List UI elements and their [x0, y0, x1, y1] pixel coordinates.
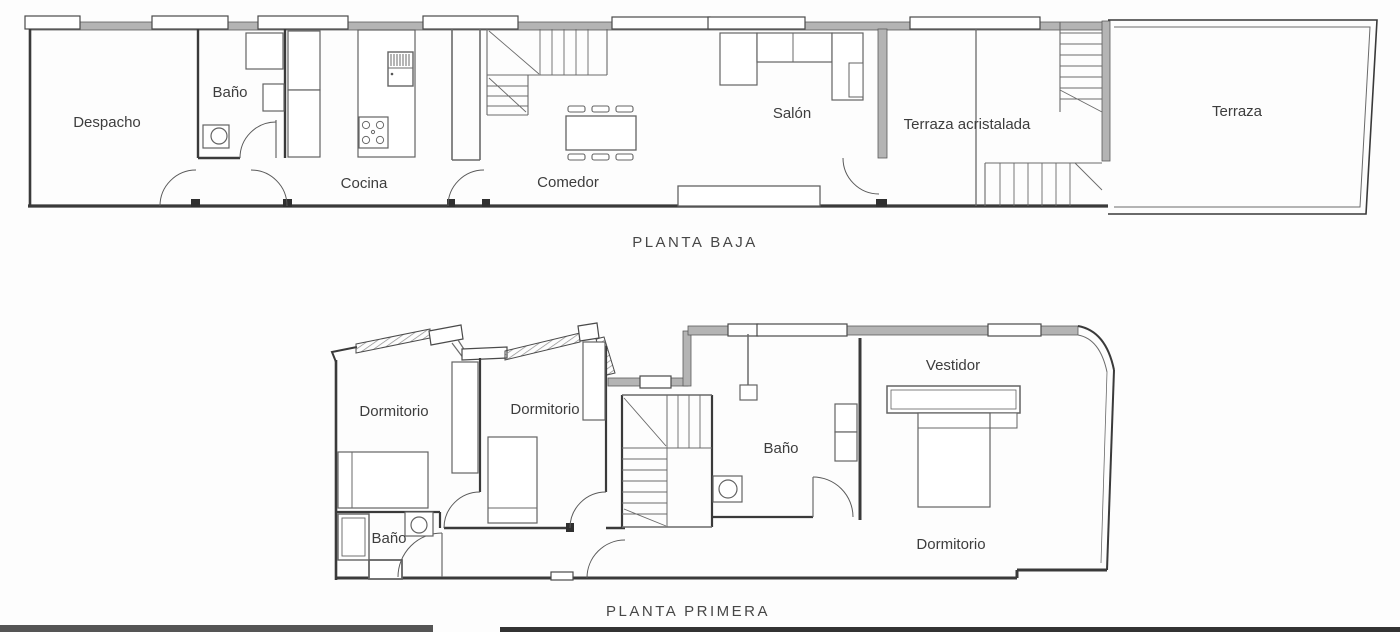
counter-icon — [288, 31, 320, 90]
plan-title-planta-primera: PLANTA PRIMERA — [606, 603, 770, 620]
bed-icon — [338, 452, 428, 508]
window-icon — [988, 324, 1041, 336]
room-label-salon: Salón — [773, 105, 811, 122]
sink-icon — [263, 84, 284, 111]
wall-pier — [429, 325, 463, 345]
counter-icon — [288, 90, 320, 157]
room-label-terraza: Terraza — [1212, 103, 1263, 120]
window-icon — [640, 376, 671, 388]
kitchen-fixtures — [288, 30, 415, 157]
wall-pier — [462, 347, 507, 360]
window-icon — [612, 17, 710, 29]
skylight-window-icon — [356, 329, 430, 353]
dining-table-icon — [566, 106, 636, 160]
room-label-bano: Baño — [212, 84, 247, 101]
floor-plan-document: Despacho Baño Cocina Comedor Salón Terra… — [0, 0, 1400, 632]
skylight-window-icon — [505, 333, 580, 360]
bed-icon — [488, 437, 537, 523]
sofa-icon — [720, 33, 863, 100]
room-label-dormitorio-centro: Dormitorio — [510, 401, 579, 418]
room-label-vestidor: Vestidor — [926, 357, 980, 374]
toilet-icon — [405, 512, 433, 536]
stairs-icon — [985, 22, 1102, 206]
room-label-bano-principal: Baño — [763, 440, 798, 457]
window-icon — [910, 17, 1040, 29]
window-icon — [25, 16, 80, 29]
window-icon — [423, 16, 518, 29]
shower-head-icon — [740, 334, 757, 400]
room-label-despacho: Despacho — [73, 114, 141, 131]
window-icon — [757, 324, 847, 336]
sink-icon — [835, 404, 857, 432]
room-label-bano-pequeno: Baño — [371, 530, 406, 547]
wardrobe-icon — [583, 342, 605, 420]
shower-icon — [246, 33, 283, 69]
room-label-dormitorio-izq: Dormitorio — [359, 403, 428, 420]
room-label-comedor: Comedor — [537, 174, 599, 191]
plan-title-planta-baja: PLANTA BAJA — [632, 234, 758, 251]
main-bathroom-fixtures — [713, 334, 857, 502]
bottom-separator-right — [500, 627, 1400, 632]
window-icon — [708, 17, 805, 29]
stove-icon — [359, 117, 388, 148]
bench-icon — [678, 186, 820, 206]
window-icon — [152, 16, 228, 29]
window-icon — [258, 16, 348, 29]
window-icon — [728, 324, 758, 336]
planta-primera-walls — [332, 323, 1114, 580]
planta-primera-plan: Dormitorio Dormitorio Baño Baño Vestidor… — [332, 323, 1114, 620]
floor-plan-canvas: Despacho Baño Cocina Comedor Salón Terra… — [0, 0, 1400, 632]
fridge-icon — [388, 52, 413, 86]
planta-baja-plan: Despacho Baño Cocina Comedor Salón Terra… — [25, 16, 1377, 251]
shower-icon — [338, 514, 369, 560]
room-label-cocina: Cocina — [341, 175, 388, 192]
toilet-icon — [713, 476, 742, 502]
stairs-icon — [622, 395, 712, 527]
wall-pier — [578, 323, 599, 341]
room-label-terraza-acristalada: Terraza acristalada — [904, 116, 1031, 133]
bottom-separator-left — [0, 625, 433, 632]
stairs-icon — [487, 29, 607, 115]
sink-icon — [835, 432, 857, 461]
bed-icon — [918, 413, 990, 507]
room-label-dormitorio-principal: Dormitorio — [916, 536, 985, 553]
toilet-icon — [203, 125, 229, 148]
wardrobe-icon — [452, 362, 478, 473]
